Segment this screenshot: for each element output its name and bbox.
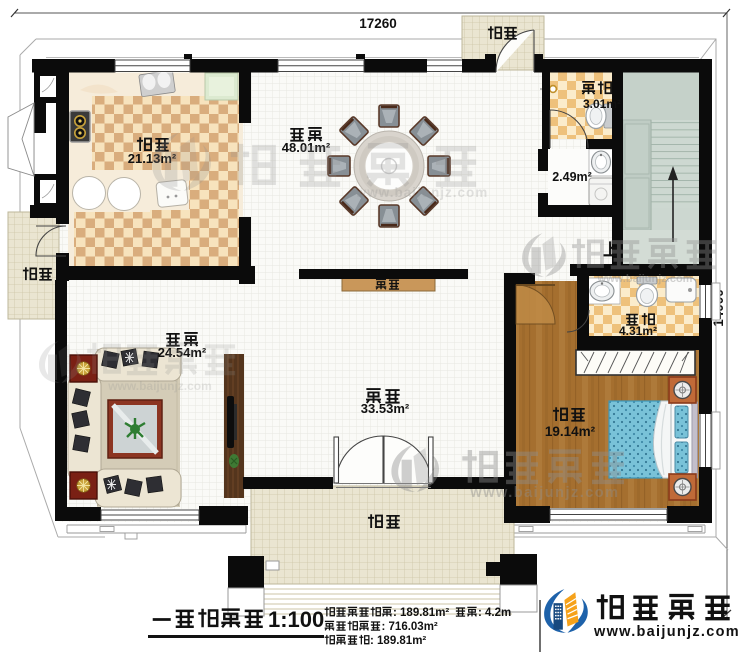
svg-text:www.baijunjz.com: www.baijunjz.com — [469, 485, 619, 501]
svg-text:3.01m²: 3.01m² — [583, 97, 621, 111]
svg-text:: 189.81m²: : 189.81m² — [393, 607, 449, 619]
svg-text:2.49m²: 2.49m² — [552, 170, 592, 184]
svg-text:19.14m²: 19.14m² — [545, 424, 596, 439]
svg-text:www.baijunjz.com: www.baijunjz.com — [107, 379, 212, 393]
svg-text:www.baijunjz.com: www.baijunjz.com — [597, 273, 693, 285]
svg-text:www.baijunjz.com: www.baijunjz.com — [355, 185, 489, 200]
svg-text:1:100: 1:100 — [268, 607, 324, 632]
svg-text:17260: 17260 — [359, 16, 397, 31]
svg-text:: 189.81m²: : 189.81m² — [370, 635, 426, 647]
svg-text:4.31m²: 4.31m² — [619, 324, 657, 338]
svg-text:: 4.2m: : 4.2m — [478, 607, 511, 619]
svg-text:www.baijunjz.com: www.baijunjz.com — [593, 624, 740, 640]
svg-text:33.53m²: 33.53m² — [361, 401, 410, 416]
svg-text:: 716.03m²: : 716.03m² — [382, 621, 438, 633]
